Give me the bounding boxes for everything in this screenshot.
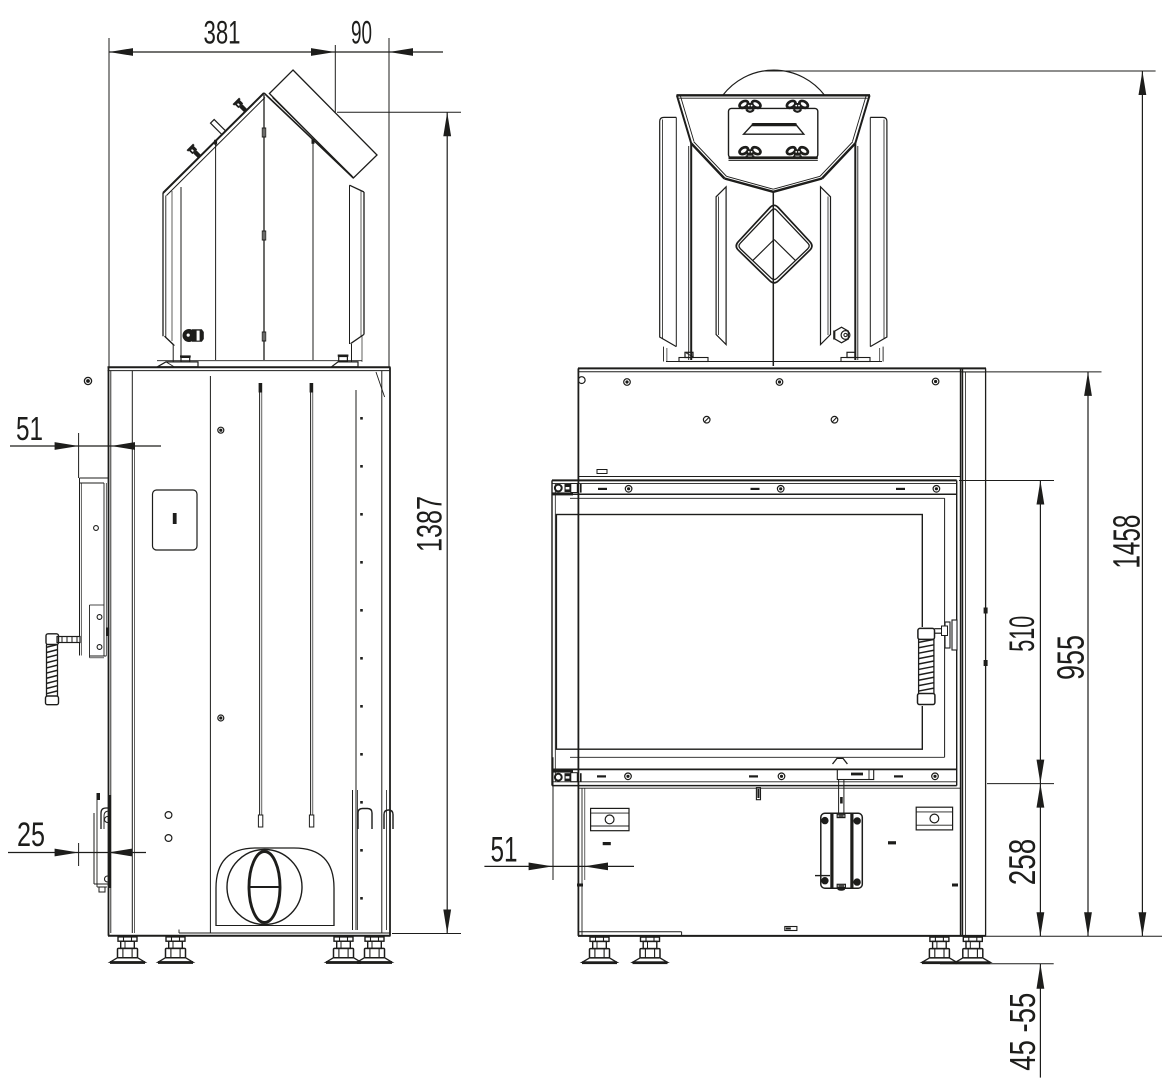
svg-text:1387: 1387	[410, 496, 449, 552]
svg-text:381: 381	[204, 15, 241, 51]
svg-text:90: 90	[351, 15, 372, 51]
svg-text:45 -55: 45 -55	[1002, 993, 1043, 1071]
svg-text:51: 51	[491, 831, 518, 870]
svg-text:25: 25	[17, 816, 45, 854]
svg-text:51: 51	[16, 410, 43, 447]
svg-text:955: 955	[1051, 635, 1093, 680]
svg-text:258: 258	[1002, 839, 1043, 886]
svg-text:510: 510	[1003, 616, 1042, 652]
svg-text:1458: 1458	[1107, 515, 1149, 569]
